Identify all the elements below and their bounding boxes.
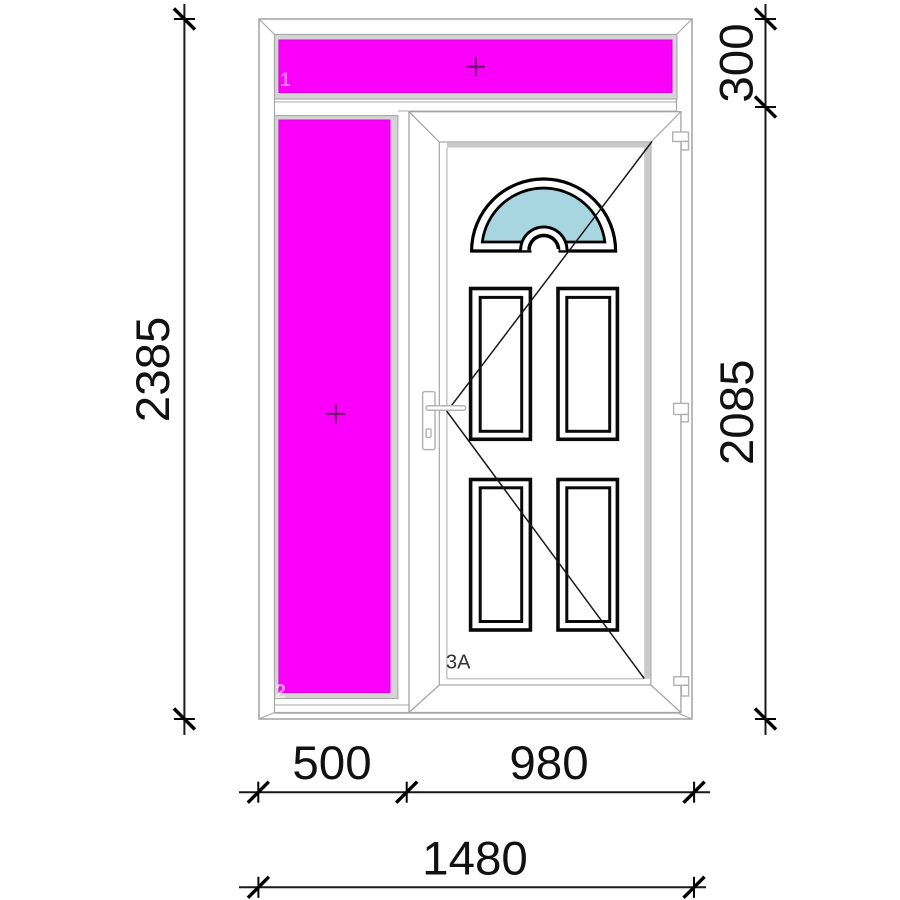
svg-text:500: 500 [292, 737, 371, 790]
svg-text:1: 1 [280, 70, 291, 91]
svg-text:300: 300 [711, 23, 764, 102]
svg-text:2: 2 [275, 681, 286, 703]
svg-text:1480: 1480 [422, 833, 528, 886]
svg-text:3A: 3A [446, 652, 471, 674]
svg-text:980: 980 [509, 737, 588, 790]
svg-text:2385: 2385 [127, 317, 180, 423]
svg-text:2085: 2085 [711, 359, 764, 465]
